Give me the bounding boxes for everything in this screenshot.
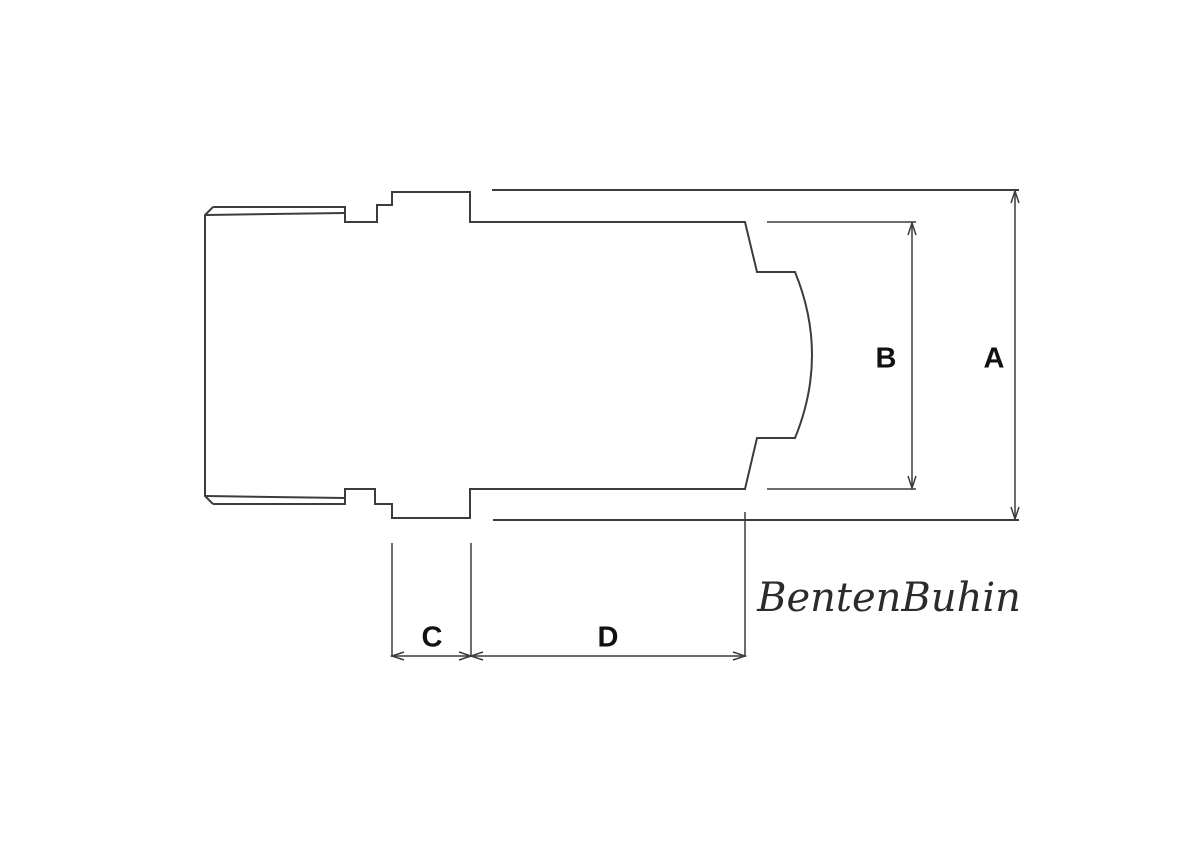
dimension-a <box>1011 191 1019 519</box>
dimension-label-a: A <box>984 343 1005 376</box>
dimension-label-d: D <box>598 622 619 655</box>
dimension-label-c: C <box>422 622 443 655</box>
dimension-c-d <box>392 512 745 660</box>
brand-signature: BentenBuhin <box>757 575 1021 621</box>
chamfer-line-top <box>206 213 345 215</box>
chamfer-line-bottom <box>206 496 345 498</box>
dimension-label-b: B <box>876 343 897 376</box>
part-left-face-path <box>205 207 213 504</box>
part-drawing-svg <box>0 0 1200 848</box>
technical-drawing-canvas: A B C D BentenBuhin <box>0 0 1200 848</box>
part-profile-path <box>213 192 812 518</box>
part-outline <box>205 190 1019 520</box>
